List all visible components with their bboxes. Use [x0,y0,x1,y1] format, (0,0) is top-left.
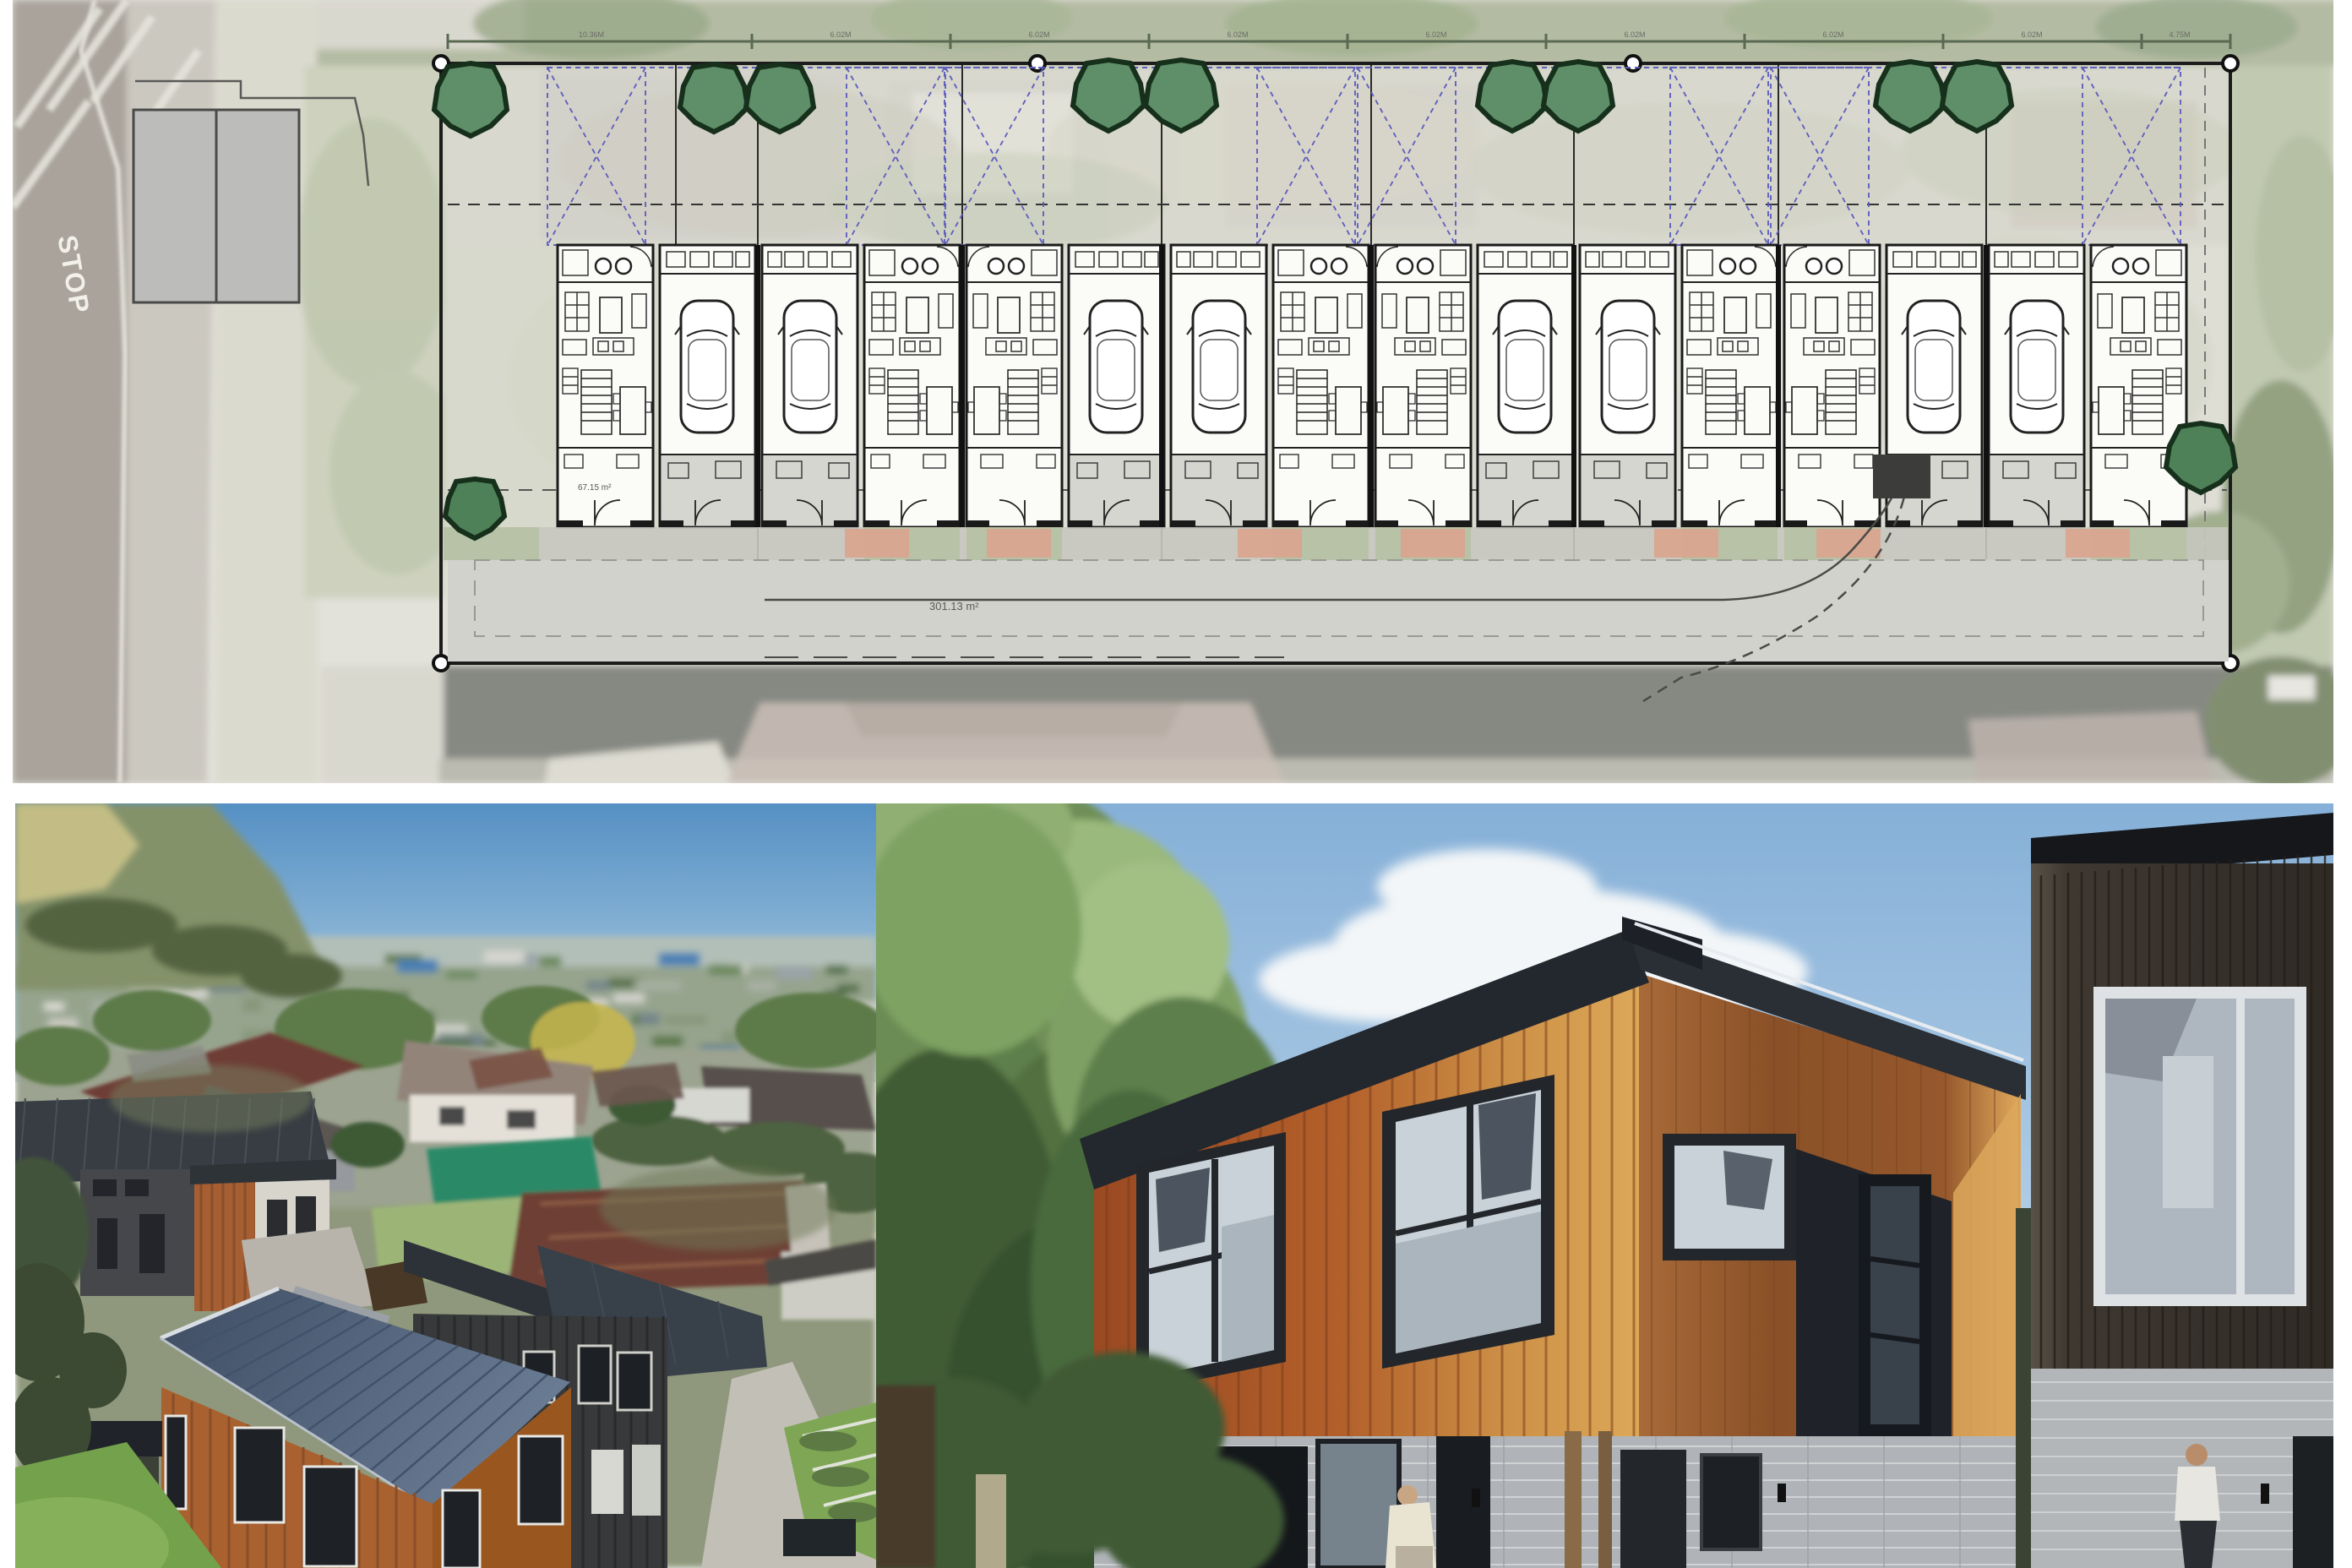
svg-text:67.15 m²: 67.15 m² [578,483,612,493]
svg-text:6.02M: 6.02M [1822,30,1843,39]
svg-text:6.02M: 6.02M [1227,30,1248,39]
svg-text:6.02M: 6.02M [2021,30,2042,39]
svg-text:4.75M: 4.75M [2169,30,2190,39]
svg-text:6.02M: 6.02M [1425,30,1446,39]
svg-text:301.13 m²: 301.13 m² [929,600,979,612]
svg-text:6.02M: 6.02M [1028,30,1049,39]
svg-text:10.36M: 10.36M [579,30,604,39]
svg-text:6.02M: 6.02M [1624,30,1645,39]
svg-text:6.02M: 6.02M [830,30,851,39]
